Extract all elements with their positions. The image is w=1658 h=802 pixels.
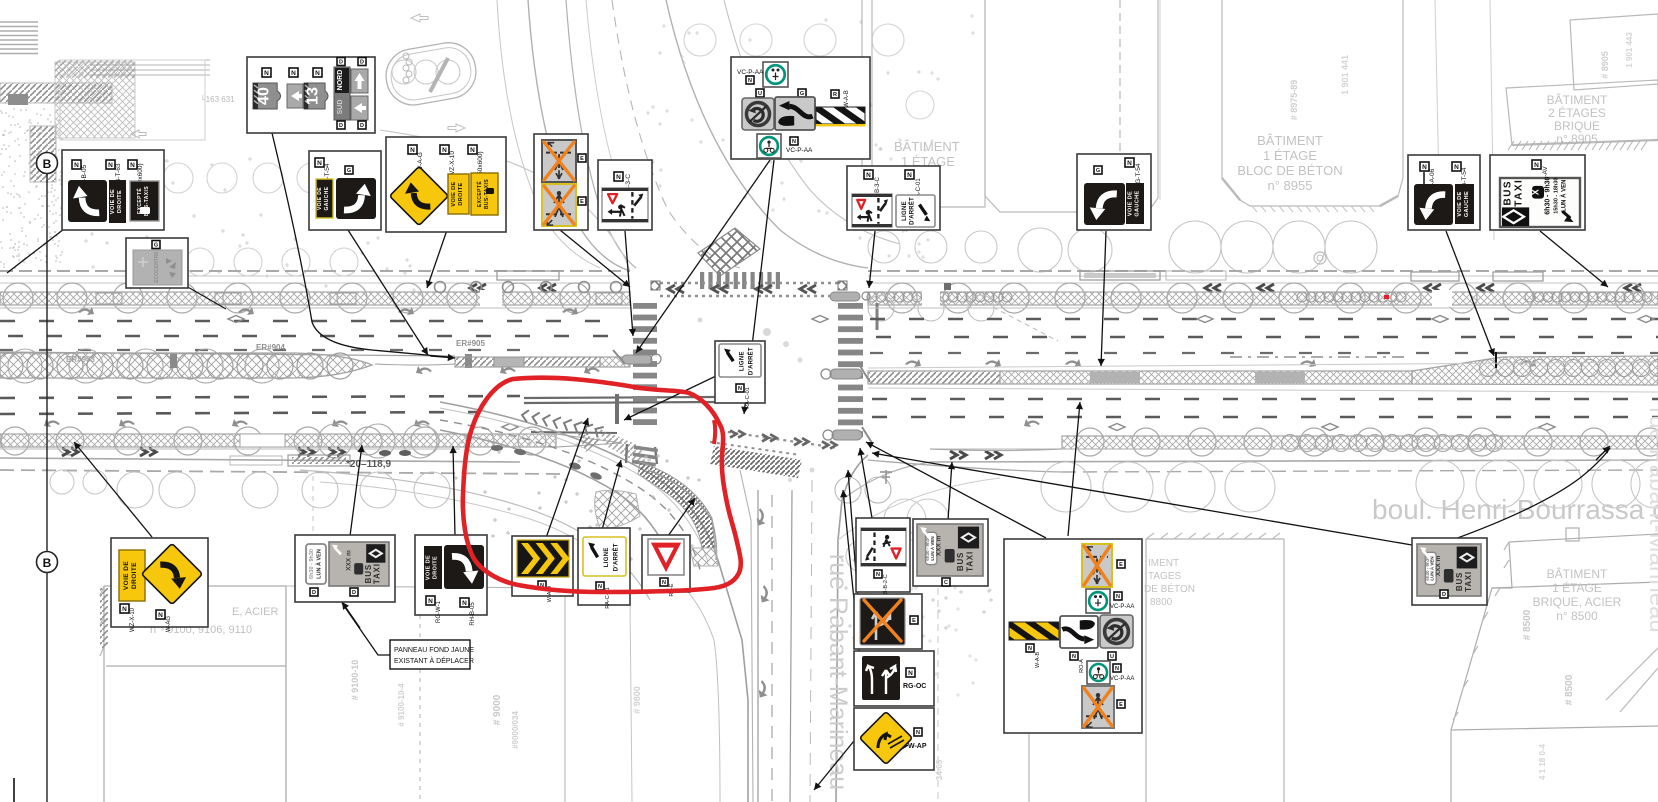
svg-text:E: E [1119, 702, 1123, 708]
svg-text:DROITE: DROITE [433, 556, 439, 579]
svg-text:DROITE: DROITE [131, 562, 138, 589]
svg-text:# 9100-10: # 9100-10 [350, 660, 360, 701]
svg-text:XXX m: XXX m [346, 550, 353, 571]
svg-text:XXX m: XXX m [1435, 555, 1442, 576]
svg-text:WZ-X-10: WZ-X-10 [449, 151, 456, 177]
svg-text:ÉCOCENTRE: ÉCOCENTRE [152, 251, 160, 283]
svg-text:DE BÉTON: DE BÉTON [1144, 582, 1195, 595]
svg-text:4 1 18 0-4: 4 1 18 0-4 [1538, 743, 1547, 780]
svg-text:N: N [1116, 594, 1120, 600]
svg-text:VOIE DE: VOIE DE [110, 189, 116, 214]
svg-text:N: N [158, 612, 163, 619]
svg-text:W-AG: W-AG [166, 616, 172, 633]
svg-text:VC-P-AA: VC-P-AA [1110, 604, 1134, 610]
svg-text:D'ARRÊT: D'ARRÊT [611, 543, 619, 571]
svg-text:D: D [339, 123, 343, 129]
svg-text:DROITE: DROITE [117, 190, 123, 213]
svg-text:LIGNE: LIGNE [902, 201, 908, 221]
svg-text:GAUCHE: GAUCHE [324, 186, 330, 210]
svg-text:W-A-B: W-A-B [1035, 652, 1041, 668]
svg-text:RH-B-05: RH-B-05 [470, 602, 476, 626]
svg-text:BÂTIMENT: BÂTIMENT [1547, 92, 1608, 107]
svg-text:N: N [866, 172, 871, 179]
svg-text:N: N [410, 147, 415, 154]
svg-text:BÂTIMENT: BÂTIMENT [894, 139, 960, 154]
svg-text:N: N [1028, 646, 1032, 652]
svg-text:rue Pabant-Marineau: rue Pabant-Marineau [1644, 407, 1658, 632]
svg-text:15h30 - 18h30: 15h30 - 18h30 [1554, 178, 1560, 214]
svg-text:6h30 - 9h30: 6h30 - 9h30 [309, 549, 315, 579]
svg-text:N: N [428, 598, 433, 605]
svg-text:#9000/034: #9000/034 [511, 711, 520, 749]
svg-text:# 8500: # 8500 [1564, 674, 1575, 705]
svg-text:NORD: NORD [337, 70, 344, 91]
svg-text:N: N [470, 147, 475, 154]
svg-text:D: D [312, 590, 316, 596]
svg-text:N: N [1422, 164, 1427, 171]
svg-text:BÂTIMENT: BÂTIMENT [1257, 133, 1323, 148]
svg-text:XXX m: XXX m [936, 535, 943, 556]
svg-text:ER#904: ER#904 [256, 343, 285, 352]
svg-text:RG-W-1: RG-W-1 [436, 600, 442, 623]
svg-text:34-05: 34-05 [935, 759, 944, 780]
svg-text:LIGNE: LIGNE [604, 547, 610, 567]
svg-text:n° 8905: n° 8905 [1556, 132, 1598, 146]
svg-text:13: 13 [304, 87, 322, 105]
svg-text:rue Rabant-Marineau: rue Rabant-Marineau [824, 554, 852, 790]
svg-text:N: N [442, 147, 447, 154]
svg-text:# 8500: # 8500 [1522, 609, 1533, 640]
svg-text:LUN À VEN: LUN À VEN [1561, 179, 1568, 211]
svg-text:N: N [1454, 164, 1459, 171]
svg-text:TAXI: TAXI [1464, 571, 1473, 592]
svg-text:ER#905: ER#905 [456, 339, 485, 348]
svg-text:X: X [1530, 189, 1540, 195]
svg-text:VOIE DE: VOIE DE [425, 555, 431, 580]
svg-text:RG-OC: RG-OC [903, 683, 926, 690]
svg-text:VC-P-AA: VC-P-AA [737, 69, 764, 76]
svg-text:N: N [792, 139, 796, 145]
svg-text:8800: 8800 [1150, 597, 1173, 608]
svg-text:G: G [1096, 168, 1100, 174]
svg-text:N: N [122, 606, 127, 613]
svg-text:LUN À VEN: LUN À VEN [929, 536, 935, 560]
svg-text:TAXI: TAXI [1514, 179, 1525, 207]
svg-text:N: N [916, 730, 920, 736]
svg-text:1 ÉTAGE: 1 ÉTAGE [1263, 148, 1317, 163]
svg-text:D: D [360, 59, 364, 65]
svg-text:E, ACIER: E, ACIER [232, 606, 279, 618]
svg-text:N: N [738, 386, 742, 392]
svg-text:EXISTANT À DÉPLACER: EXISTANT À DÉPLACER [394, 656, 474, 665]
svg-text:N: N [748, 78, 752, 84]
svg-text:1 901 443: 1 901 443 [1625, 32, 1634, 68]
svg-text:U: U [1110, 654, 1114, 660]
svg-text:n° 8500: n° 8500 [1556, 609, 1598, 623]
svg-text:1 ÉTAGE: 1 ÉTAGE [1552, 580, 1602, 595]
svg-text:N: N [74, 162, 79, 169]
svg-text:N: N [598, 584, 602, 590]
svg-text:boul. Henri-Bourrassa oues: boul. Henri-Bourrassa oues [1372, 494, 1658, 525]
svg-text:BUS: BUS [956, 552, 965, 571]
svg-text:EXCEPTÉ: EXCEPTÉ [475, 181, 483, 207]
svg-text:C: C [944, 580, 948, 586]
svg-text:G: G [347, 168, 351, 174]
svg-text:E: E [580, 156, 584, 162]
svg-text:W-AP: W-AP [908, 743, 927, 750]
svg-text:D'ARRÊT: D'ARRÊT [747, 347, 755, 375]
svg-text:D: D [352, 590, 356, 596]
svg-text:2 ÉTAGES: 2 ÉTAGES [1548, 105, 1606, 120]
svg-text:N: N [908, 670, 913, 677]
svg-text:N: N [616, 174, 621, 181]
svg-text:N: N [907, 172, 912, 179]
svg-text:1 901 441: 1 901 441 [1340, 55, 1350, 95]
svg-text:n° 8955: n° 8955 [1268, 178, 1313, 193]
svg-text:BRIQUE, ACIER: BRIQUE, ACIER [1533, 595, 1622, 609]
svg-text:LIGNE: LIGNE [739, 351, 745, 371]
svg-text:E: E [912, 618, 916, 624]
svg-text:BUS: BUS [1455, 572, 1464, 591]
svg-text:B: B [43, 556, 52, 570]
svg-text:SUD: SUD [337, 100, 344, 115]
svg-text:R: R [833, 92, 837, 98]
svg-text:E: E [580, 199, 584, 205]
svg-text:# 8975-89: # 8975-89 [1289, 80, 1299, 121]
svg-text:6h30 - 9h30: 6h30 - 9h30 [1545, 176, 1552, 214]
svg-text:N: N [662, 580, 666, 586]
svg-text:LUN À VEN: LUN À VEN [315, 549, 322, 579]
svg-text:N: N [130, 162, 135, 169]
svg-text:E: E [1119, 562, 1123, 568]
svg-text:VOIE DE: VOIE DE [317, 187, 323, 210]
svg-text:RO-A: RO-A [1079, 659, 1085, 673]
svg-text:VOIE DE: VOIE DE [1457, 191, 1463, 216]
svg-text:G: G [800, 91, 804, 97]
svg-text:B: B [43, 157, 52, 171]
svg-text:TAXI: TAXI [965, 551, 974, 572]
svg-text:IMENT: IMENT [1148, 558, 1179, 569]
svg-text:D: D [339, 59, 343, 65]
svg-text:D'ARRÊT: D'ARRÊT [908, 197, 916, 225]
svg-text:GAUCHE: GAUCHE [1464, 191, 1470, 217]
svg-text:DROITE: DROITE [458, 182, 464, 205]
svg-text:U: U [758, 91, 762, 97]
svg-text:BÂTIMENT: BÂTIMENT [1547, 566, 1608, 581]
svg-text:BUS: BUS [1502, 180, 1513, 206]
svg-text:N: N [876, 572, 880, 578]
svg-text:WZ-X-10: WZ-X-10 [130, 607, 136, 632]
svg-text:RA-C-01: RA-C-01 [745, 387, 751, 408]
svg-text:N: N [264, 70, 269, 77]
svg-text:N: N [462, 600, 467, 607]
svg-text:VC-P-AA: VC-P-AA [1110, 676, 1134, 682]
svg-text:N: N [108, 162, 113, 169]
svg-text:# 8905: # 8905 [1600, 51, 1610, 79]
svg-text:VC-P-AA: VC-P-AA [786, 147, 813, 154]
svg-text:N: N [317, 160, 322, 167]
svg-text:N: N [1534, 162, 1539, 169]
svg-text:# 9800: # 9800 [632, 686, 642, 714]
svg-text:VOIE DE: VOIE DE [123, 561, 130, 590]
svg-text:D: D [360, 123, 364, 129]
svg-text:*20–118,9: *20–118,9 [346, 459, 391, 470]
svg-text:VOIE DE: VOIE DE [451, 181, 457, 206]
svg-text:N: N [1115, 666, 1119, 672]
svg-text:N: N [315, 70, 320, 77]
svg-text:BRIQUE: BRIQUE [1554, 119, 1600, 133]
svg-text:D: D [1442, 592, 1446, 598]
svg-text:PANNEAU FOND JAUNE: PANNEAU FOND JAUNE [394, 647, 474, 654]
svg-text:40: 40 [255, 87, 273, 105]
svg-text:N: N [1072, 654, 1076, 660]
svg-text:VOIE DE: VOIE DE [1127, 191, 1133, 216]
svg-text:N: N [291, 70, 296, 77]
svg-text:G: G [154, 242, 158, 248]
svg-text:# 9000: # 9000 [492, 694, 503, 725]
svg-text:TAGES: TAGES [1148, 571, 1181, 582]
svg-text:BLOC DE BÉTON: BLOC DE BÉTON [1237, 163, 1342, 178]
svg-text:TAXI: TAXI [372, 563, 381, 584]
svg-text:W-A-B: W-A-B [844, 90, 850, 108]
svg-text:GAUCHE: GAUCHE [1135, 190, 1141, 216]
svg-text:N: N [1127, 160, 1132, 167]
svg-text:ER#903: ER#903 [66, 355, 95, 364]
svg-text:# 9100-10-4: # 9100-10-4 [397, 683, 406, 727]
svg-text:LUN À VEN: LUN À VEN [1429, 556, 1435, 580]
